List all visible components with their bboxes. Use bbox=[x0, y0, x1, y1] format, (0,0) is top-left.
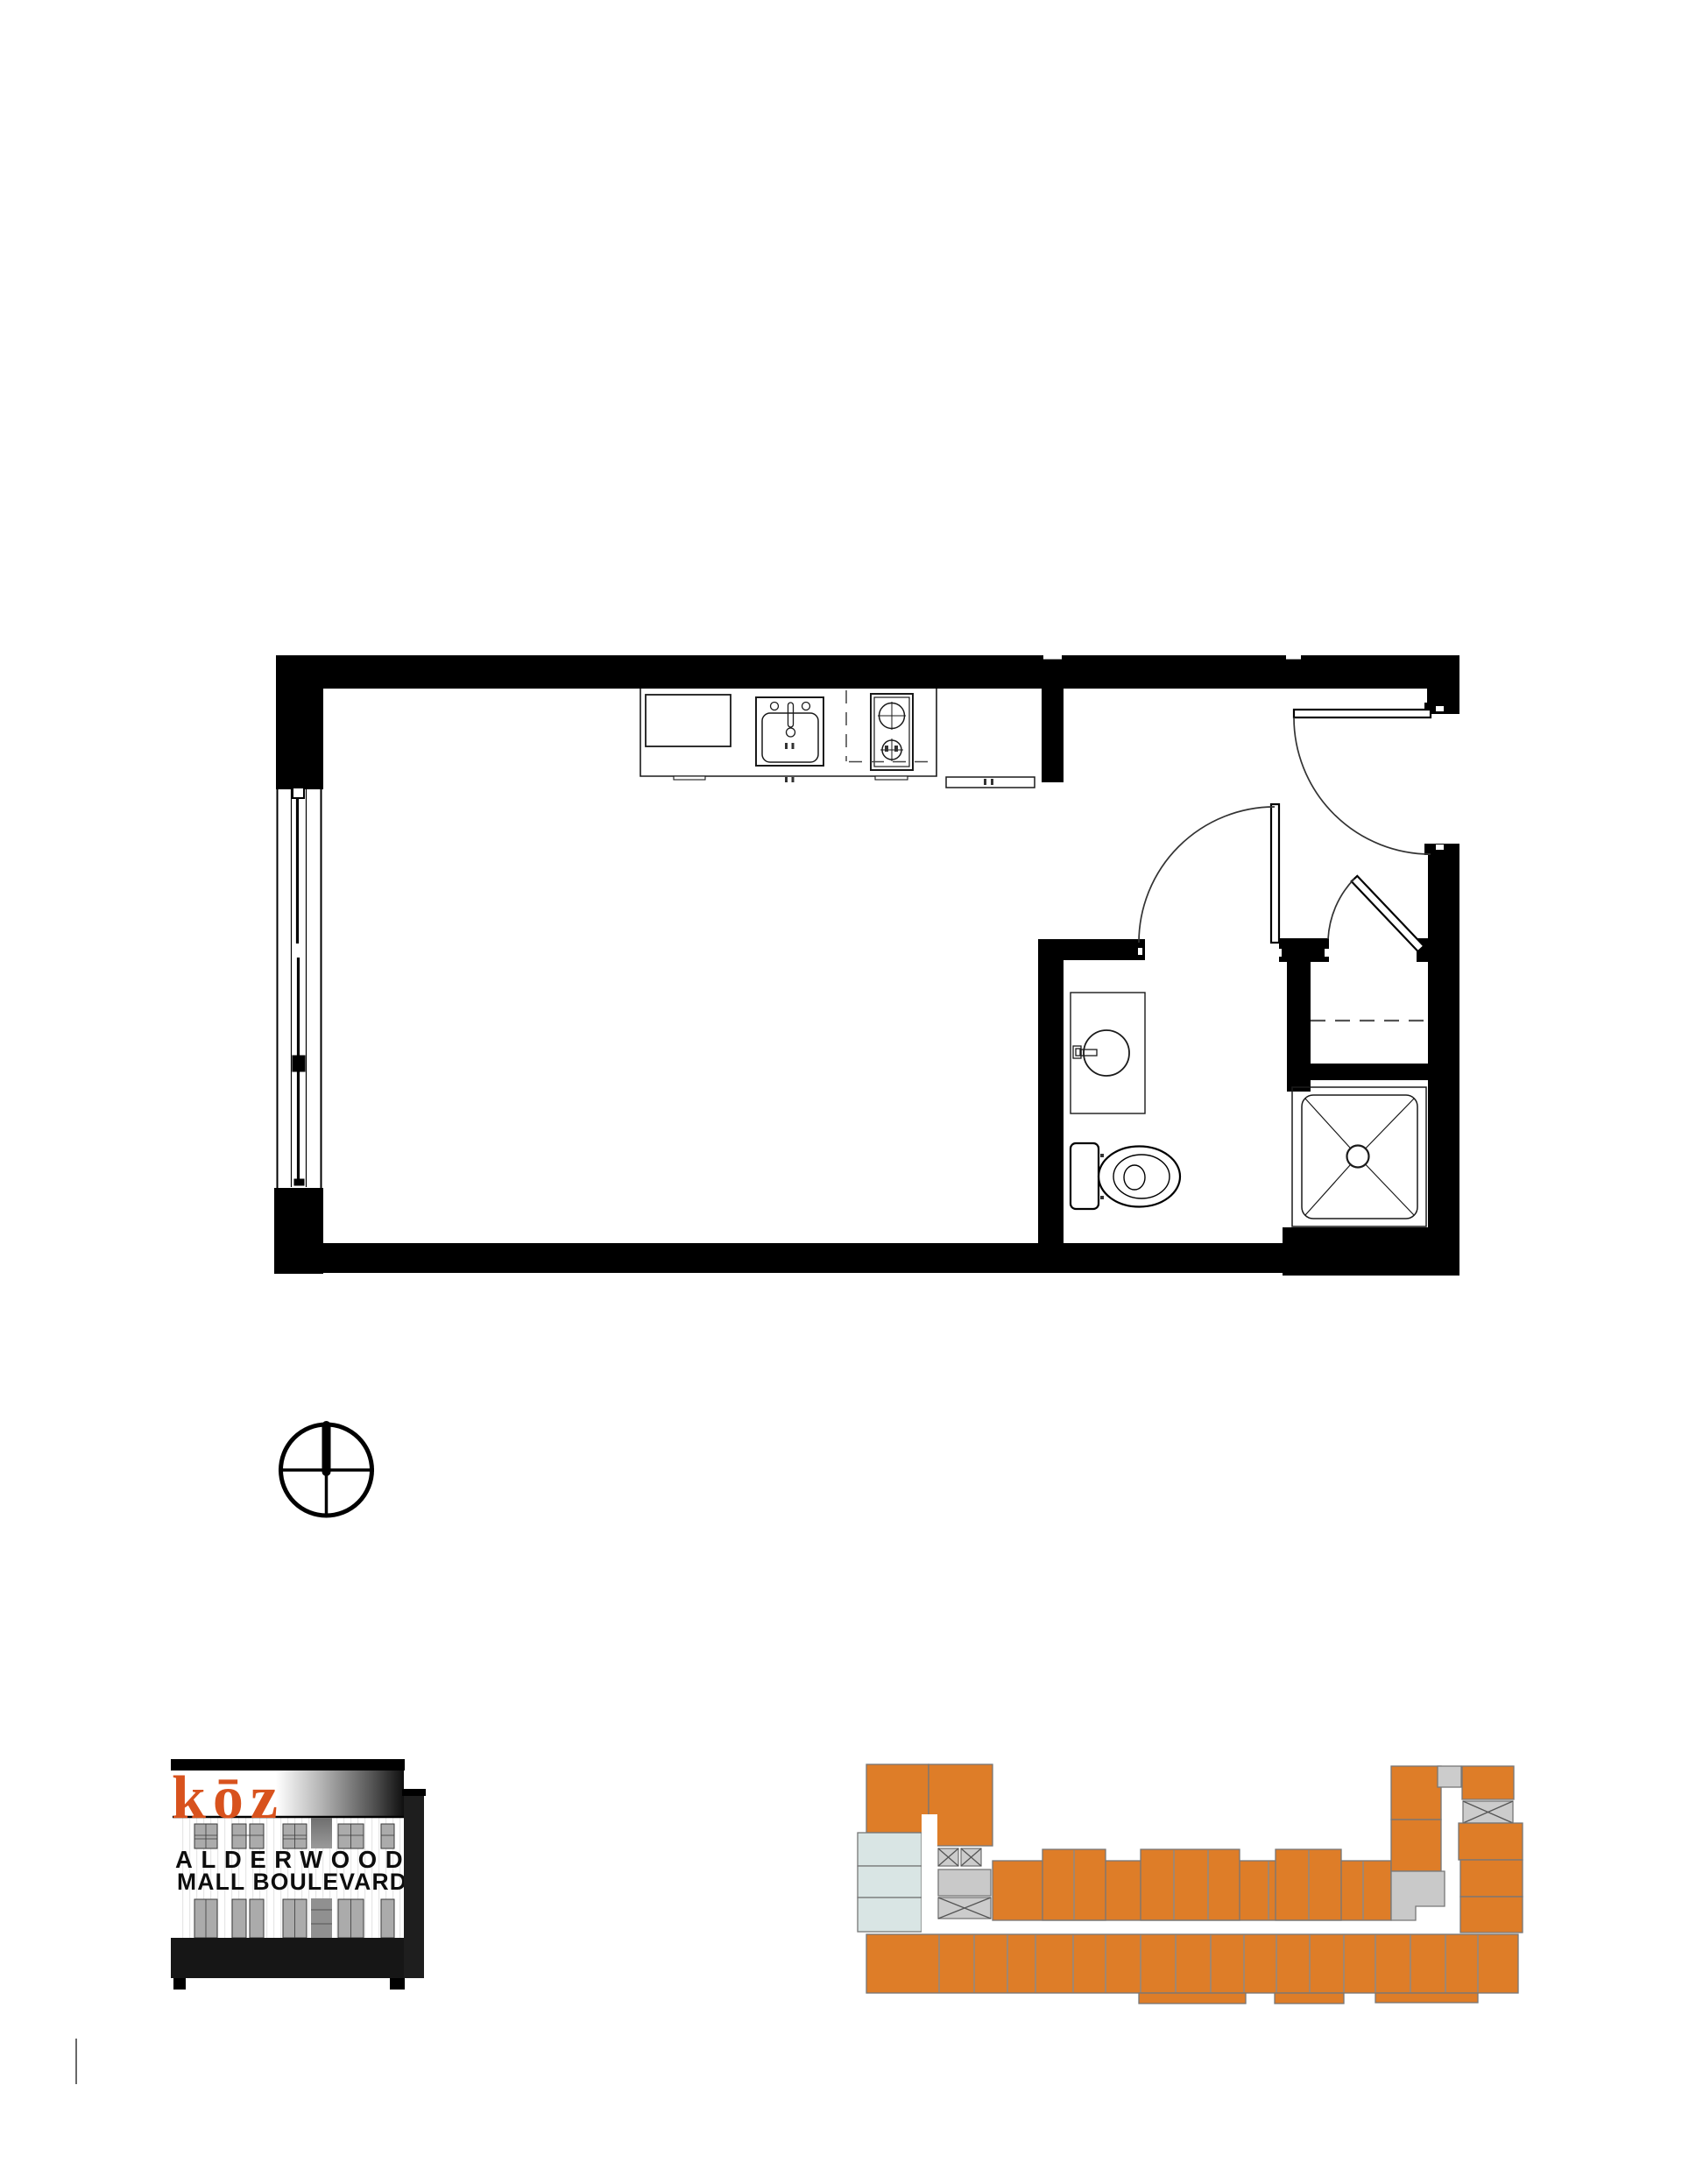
svg-text:MALL BOULEVARD: MALL BOULEVARD bbox=[177, 1869, 407, 1895]
svg-text:kōz: kōz bbox=[172, 1764, 285, 1832]
